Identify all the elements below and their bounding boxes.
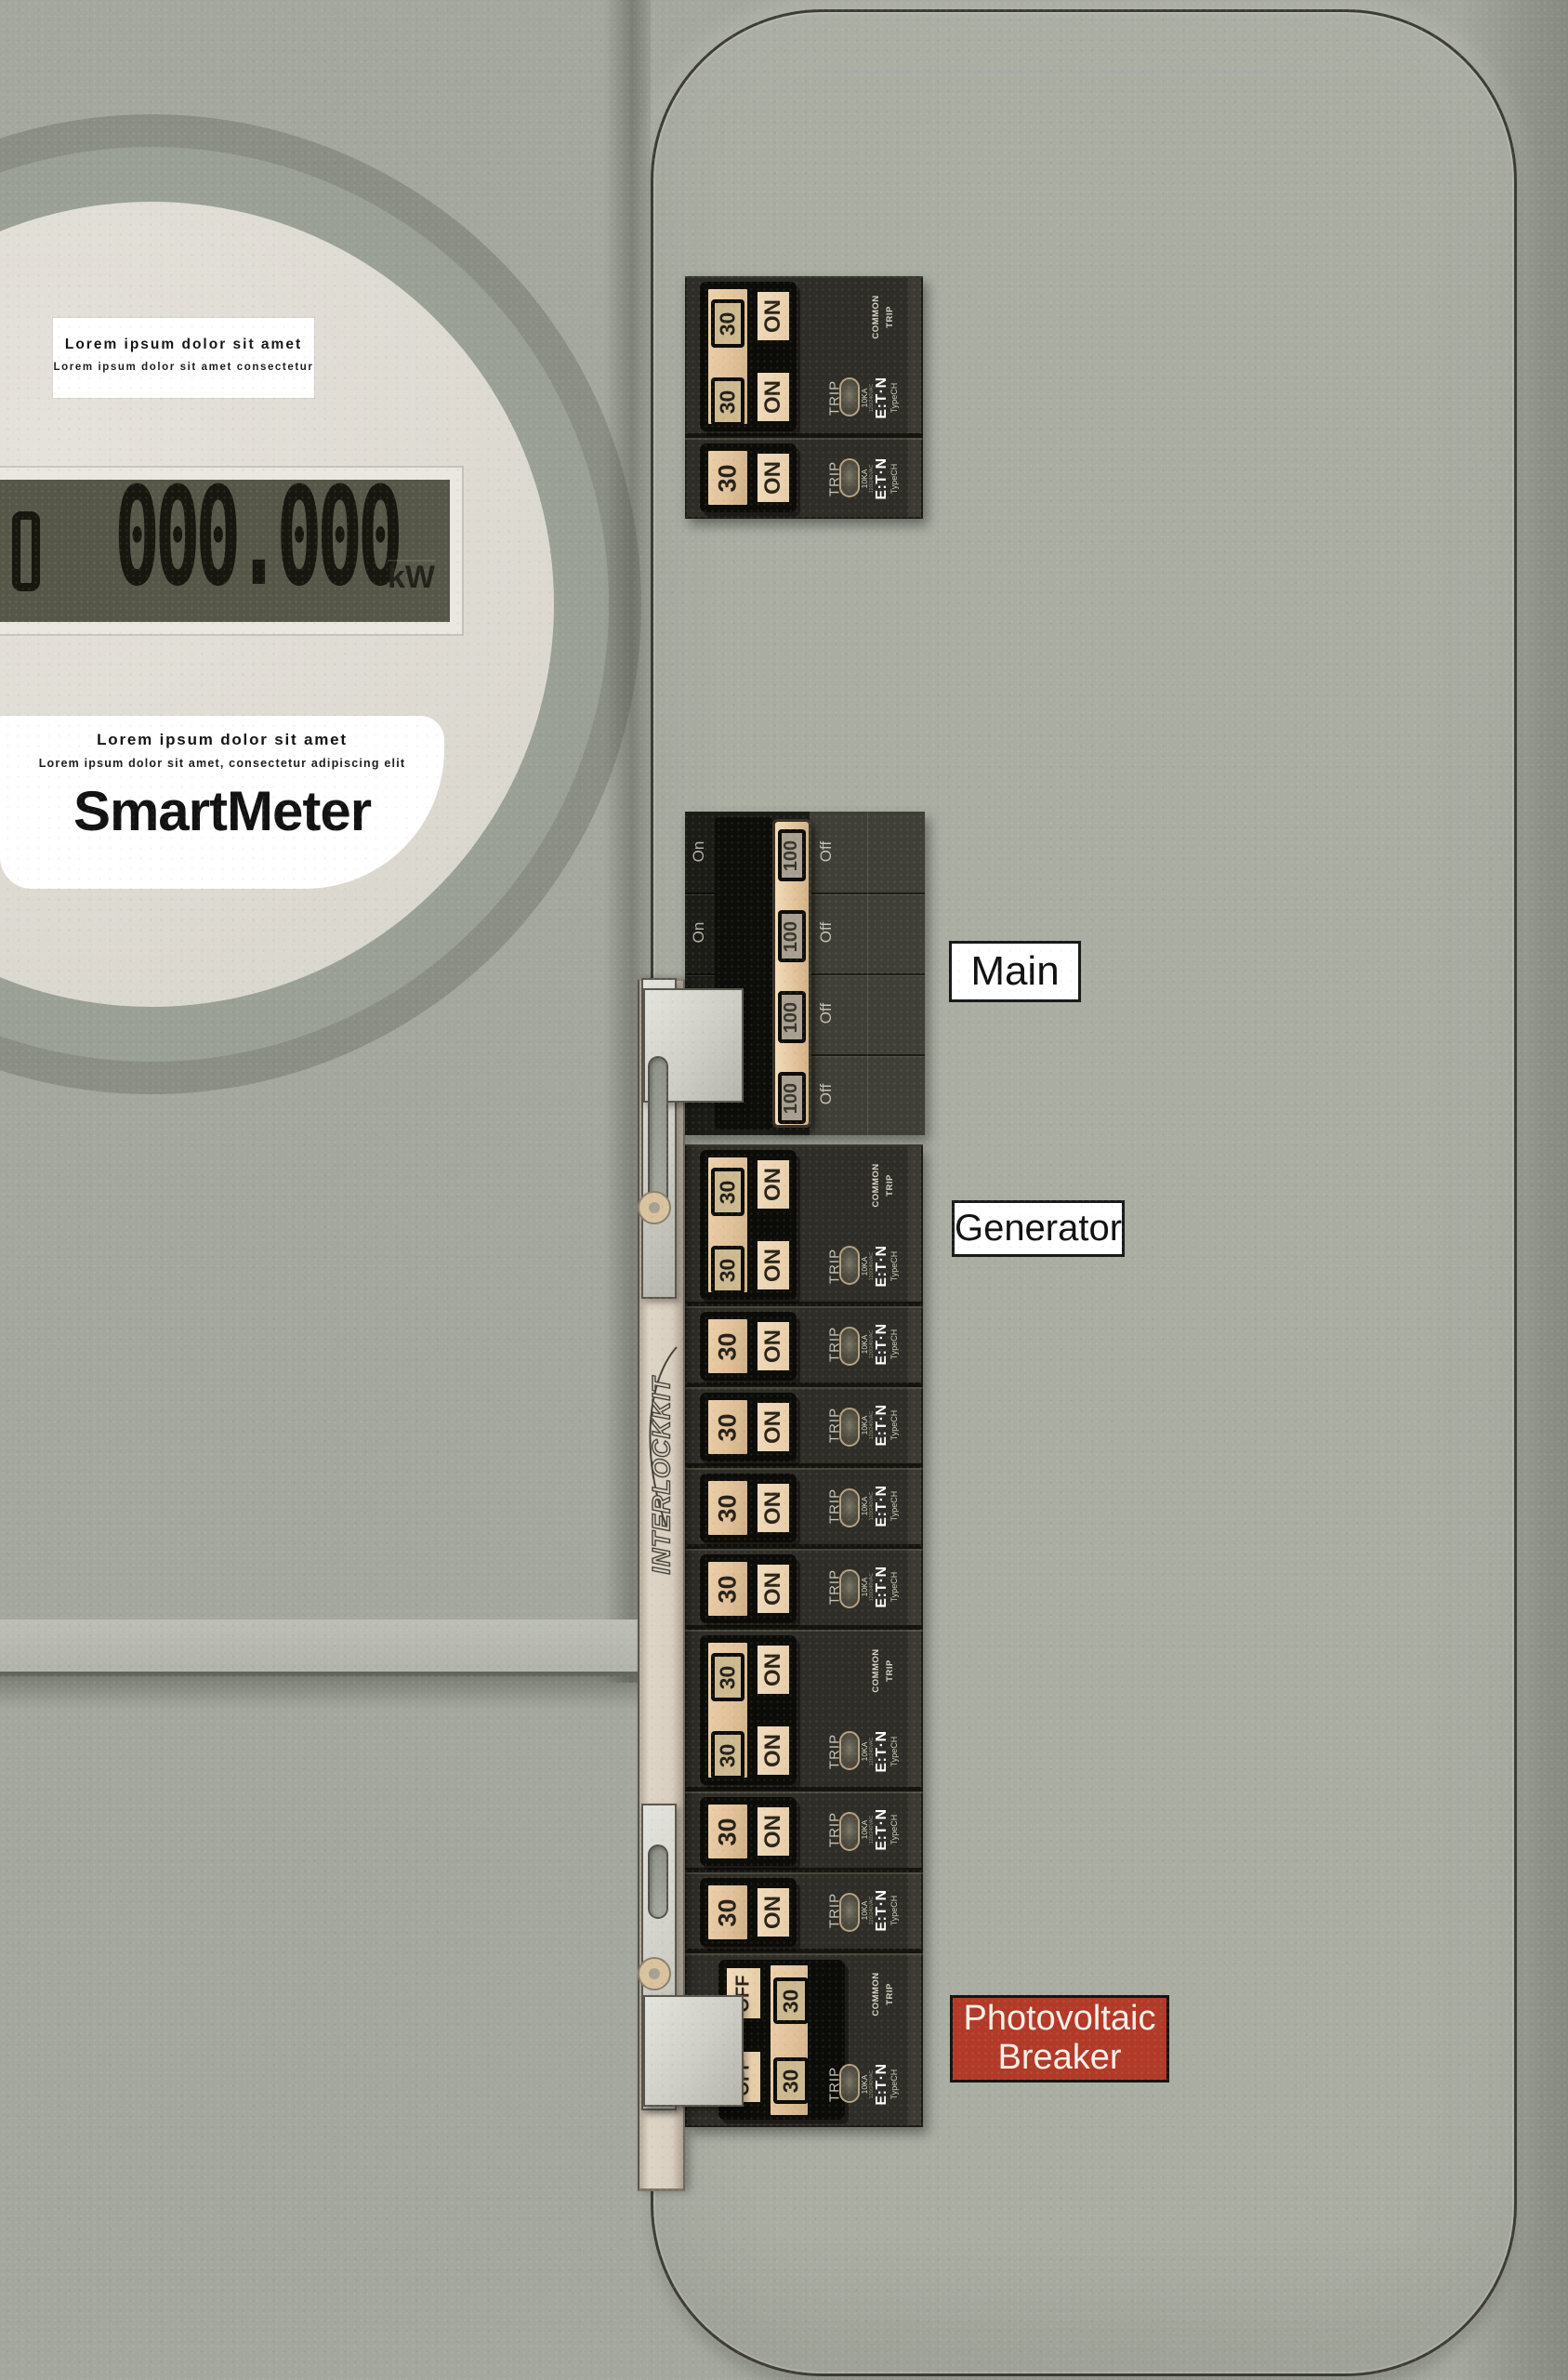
breaker-handle[interactable]: 30 bbox=[705, 1882, 751, 1943]
breaker-handle[interactable]: 30 bbox=[705, 1801, 751, 1862]
single-pole-breaker: 30 ON TRIP 10KA 120/240VAC E:T·N TypeCH bbox=[685, 1468, 923, 1549]
type-label: TypeCH bbox=[889, 463, 899, 494]
type-label: TypeCH bbox=[889, 1736, 899, 1766]
amp-rating: 30 bbox=[713, 464, 742, 492]
trip-window bbox=[839, 458, 860, 497]
amp-rating-plate: 100 bbox=[778, 1072, 806, 1124]
rating-label: 10KA bbox=[860, 1578, 869, 1597]
main-tag-text: Main bbox=[970, 948, 1059, 995]
branch-breaker-column: 30 30 ON ON COMMONTRIP TRIP 10KA 120/240… bbox=[685, 1144, 923, 2127]
lcd-unit-label: kW bbox=[388, 560, 435, 596]
breaker-toggle[interactable]: ON bbox=[754, 1884, 793, 1940]
generator-tag: Generator bbox=[952, 1200, 1125, 1257]
main-on-label: On bbox=[690, 841, 708, 863]
trip-window bbox=[839, 1327, 860, 1366]
rating-label: 10KA bbox=[860, 1497, 869, 1516]
breaker-handle[interactable]: 30 bbox=[705, 1477, 751, 1539]
breaker-handle[interactable]: 30 bbox=[705, 1316, 751, 1377]
breaker-toggle[interactable]: ON bbox=[754, 450, 793, 506]
type-label: TypeCH bbox=[889, 382, 899, 413]
rating-label: 10KA bbox=[860, 469, 869, 488]
trip-window bbox=[839, 1569, 860, 1608]
lcd-small-digit bbox=[12, 511, 40, 591]
breaker-toggle[interactable]: ON bbox=[754, 1804, 793, 1859]
rating-label: 10KA bbox=[860, 1820, 869, 1840]
interlock-slot bbox=[648, 1056, 668, 1209]
rating-label: 10KA bbox=[860, 1256, 869, 1276]
interlock-slide-plate-pv[interactable] bbox=[643, 1995, 744, 2107]
maker-logo: E:T·N bbox=[874, 1404, 890, 1446]
generator-tag-text: Generator bbox=[955, 1208, 1122, 1249]
main-off-label: Off bbox=[817, 841, 836, 862]
trip-window bbox=[839, 1731, 860, 1770]
interlock-brand: INTERLOCKKIT bbox=[647, 1377, 676, 1575]
trip-window bbox=[839, 1246, 860, 1285]
type-label: TypeCH bbox=[889, 1572, 899, 1603]
maker-logo: E:T·N bbox=[874, 1566, 890, 1607]
maker-logo: E:T·N bbox=[874, 1245, 890, 1287]
meter-bottom-label: Lorem ipsum dolor sit amet Lorem ipsum d… bbox=[0, 716, 444, 889]
single-pole-breaker: 30 ON TRIP 10KA 120/240VAC E:T·N TypeCH bbox=[685, 1872, 923, 1953]
photovoltaic-tag-line2: Breaker bbox=[997, 2039, 1121, 2078]
scene: Lorem ipsum dolor sit amet Lorem ipsum d… bbox=[0, 0, 1568, 2380]
interlock-bolt[interactable] bbox=[638, 1957, 671, 1990]
breaker-toggle[interactable]: ON bbox=[754, 1399, 793, 1455]
amp-rating-plate: 100 bbox=[778, 829, 806, 881]
trip-window bbox=[839, 1488, 860, 1527]
maker-logo: E:T·N bbox=[874, 1730, 890, 1772]
main-breaker-handle[interactable]: 100 100 100 100 bbox=[772, 819, 811, 1128]
rating-label: 10KA bbox=[860, 1335, 869, 1355]
rating-label: 10KA bbox=[860, 1416, 869, 1435]
double-pole-breaker: 30 30 ON ON COMMONTRIP TRIP 10KA 120/240… bbox=[685, 1630, 923, 1792]
type-label: TypeCH bbox=[889, 1410, 899, 1441]
main-off-label: Off bbox=[817, 1003, 836, 1024]
single-pole-breaker: 30 ON TRIP 10KA 120/240VAC E:T·N TypeCH bbox=[685, 1549, 923, 1630]
breaker-toggle[interactable]: ON bbox=[754, 1561, 793, 1617]
rating-label: 10KA bbox=[860, 1901, 869, 1921]
type-label: TypeCH bbox=[889, 1896, 899, 1926]
double-pole-breaker: 30 30 ON ON COMMONTRIP TRIP 10KA 120/240… bbox=[685, 276, 923, 438]
maker-logo: E:T·N bbox=[874, 1808, 890, 1850]
maker-logo: E:T·N bbox=[874, 1323, 890, 1365]
trip-window bbox=[839, 2064, 860, 2103]
generator-breaker: 30 30 ON ON COMMONTRIP TRIP 10KA 120/240… bbox=[685, 1144, 923, 1306]
type-label: TypeCH bbox=[889, 2069, 899, 2099]
meter-board-ledge-shadow bbox=[0, 1676, 651, 1710]
maker-logo: E:T·N bbox=[874, 1889, 890, 1931]
breaker-toggle[interactable]: ON bbox=[754, 1480, 793, 1536]
photovoltaic-tag-line1: Photovoltaic bbox=[963, 2000, 1155, 2039]
toggle-state-label: ON bbox=[760, 461, 786, 495]
lcd-reading: 000.000 bbox=[114, 469, 398, 605]
meter-top-label: Lorem ipsum dolor sit amet Lorem ipsum d… bbox=[53, 318, 314, 398]
trip-window bbox=[839, 1893, 860, 1932]
type-label: TypeCH bbox=[889, 1250, 899, 1281]
interlock-slot bbox=[648, 1844, 668, 1919]
rating-label: 10KA bbox=[860, 2074, 869, 2094]
single-pole-breaker: 30 ON TRIP 10KA 120/240VAC E:T·N TypeCH bbox=[685, 1387, 923, 1468]
breaker-handle[interactable]: 30 bbox=[705, 1396, 751, 1458]
main-tag: Main bbox=[949, 941, 1081, 1002]
meter-top-label-line2: Lorem ipsum dolor sit amet consectetur bbox=[53, 362, 314, 373]
trip-window bbox=[839, 1408, 860, 1447]
maker-logo: E:T·N bbox=[874, 2063, 890, 2105]
type-label: TypeCH bbox=[889, 1491, 899, 1522]
common-trip-label: COMMONTRIP bbox=[869, 1972, 897, 2016]
common-trip-label: COMMONTRIP bbox=[869, 1163, 897, 1207]
meter-bottom-label-line2: Lorem ipsum dolor sit amet, consectetur … bbox=[0, 757, 444, 770]
main-off-label: Off bbox=[817, 1084, 836, 1104]
trip-window bbox=[839, 377, 860, 416]
rating-label: 10KA bbox=[860, 388, 869, 407]
maker-logo: E:T·N bbox=[874, 457, 890, 499]
breaker-toggle[interactable]: ON bbox=[754, 1318, 793, 1374]
breaker-handle[interactable]: 30 bbox=[705, 1558, 751, 1620]
interlock-bolt[interactable] bbox=[638, 1191, 671, 1224]
photovoltaic-tag: Photovoltaic Breaker bbox=[950, 1995, 1169, 2082]
meter-lcd-display: 000.000 kW bbox=[0, 468, 462, 634]
single-pole-breaker: 30 ON TRIP 10KA 120/240VAC E:T·N TypeCH bbox=[685, 1792, 923, 1872]
single-pole-breaker: 30 ON TRIP 10KA 120/240VAC E:T·N TypeCH bbox=[685, 438, 923, 519]
meter-top-label-line1: Lorem ipsum dolor sit amet bbox=[53, 337, 314, 353]
maker-logo: E:T·N bbox=[874, 1485, 890, 1527]
common-trip-label: COMMONTRIP bbox=[869, 295, 897, 338]
common-trip-label: COMMONTRIP bbox=[869, 1648, 897, 1692]
breaker-handle[interactable]: 30 bbox=[705, 447, 751, 509]
amp-rating-plate: 100 bbox=[778, 991, 806, 1043]
single-pole-breaker: 30 ON TRIP 10KA 120/240VAC E:T·N TypeCH bbox=[685, 1306, 923, 1387]
meter-brand: SmartMeter bbox=[0, 779, 444, 843]
trip-window bbox=[839, 1812, 860, 1851]
type-label: TypeCH bbox=[889, 1329, 899, 1360]
main-on-label: On bbox=[690, 922, 708, 944]
rating-label: 10KA bbox=[860, 1741, 869, 1761]
meter-board-ledge bbox=[0, 1620, 651, 1676]
amp-rating-plate: 100 bbox=[778, 910, 806, 962]
meter-bottom-label-line1: Lorem ipsum dolor sit amet bbox=[0, 731, 444, 749]
type-label: TypeCH bbox=[889, 1815, 899, 1845]
main-off-label: Off bbox=[817, 922, 836, 943]
maker-logo: E:T·N bbox=[874, 377, 890, 418]
breaker-group-top: 30 30 ON ON COMMONTRIP TRIP 10KA 120/240… bbox=[685, 276, 923, 519]
